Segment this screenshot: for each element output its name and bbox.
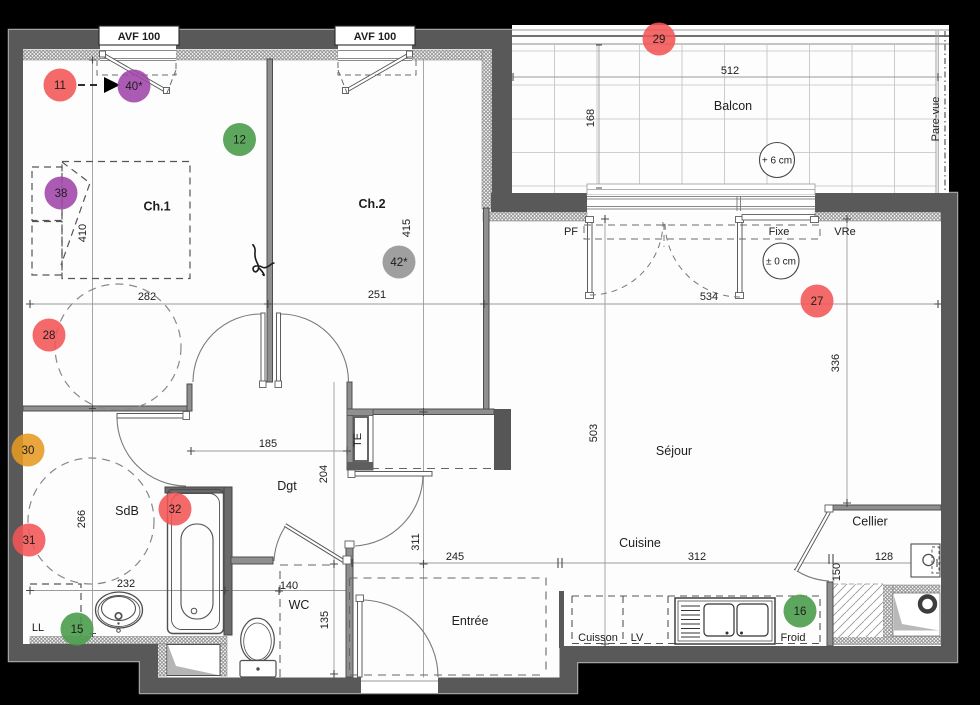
svg-text:29: 29 [653, 34, 666, 46]
svg-text:Froid: Froid [780, 632, 805, 644]
svg-text:282: 282 [138, 291, 156, 303]
svg-text:128: 128 [875, 551, 893, 563]
svg-text:± 0 cm: ± 0 cm [766, 257, 796, 268]
svg-text:32: 32 [169, 504, 182, 516]
svg-text:Cellier: Cellier [852, 515, 887, 529]
svg-text:AVF 100: AVF 100 [118, 31, 161, 43]
svg-text:Séjour: Séjour [656, 444, 692, 458]
svg-text:Entrée: Entrée [452, 614, 489, 628]
svg-text:Dgt: Dgt [277, 479, 297, 493]
svg-text:204: 204 [318, 465, 330, 483]
svg-text:415: 415 [401, 219, 413, 237]
svg-text:12: 12 [233, 135, 246, 147]
svg-text:LV: LV [631, 632, 644, 644]
svg-text:232: 232 [117, 578, 135, 590]
svg-text:Ch.1: Ch.1 [143, 200, 170, 214]
svg-text:312: 312 [688, 551, 706, 563]
svg-text:WC: WC [289, 598, 310, 612]
svg-text:16: 16 [794, 606, 807, 618]
svg-text:503: 503 [588, 424, 600, 442]
svg-text:40*: 40* [125, 81, 143, 93]
svg-text:VRe: VRe [834, 226, 855, 238]
svg-text:SdB: SdB [115, 504, 139, 518]
svg-text:534: 534 [700, 291, 718, 303]
svg-text:410: 410 [77, 224, 89, 242]
svg-text:Cuisson: Cuisson [578, 632, 618, 644]
svg-text:28: 28 [43, 330, 56, 342]
svg-text:266: 266 [76, 510, 88, 528]
svg-text:LL: LL [32, 622, 44, 634]
svg-text:Pare-vue: Pare-vue [930, 97, 942, 142]
svg-text:Ch.2: Ch.2 [358, 197, 385, 211]
svg-text:27: 27 [811, 296, 824, 308]
svg-text:140: 140 [280, 580, 298, 592]
svg-text:+ 6 cm: + 6 cm [762, 156, 792, 167]
svg-text:150: 150 [831, 563, 843, 581]
svg-text:Fixe: Fixe [769, 226, 790, 238]
svg-text:42*: 42* [390, 257, 408, 269]
svg-text:245: 245 [446, 551, 464, 563]
svg-text:Cuisine: Cuisine [619, 536, 661, 550]
svg-text:512: 512 [721, 65, 739, 77]
svg-text:311: 311 [410, 533, 422, 551]
svg-text:38: 38 [55, 188, 68, 200]
svg-text:251: 251 [368, 289, 386, 301]
svg-text:AVF 100: AVF 100 [354, 31, 397, 43]
svg-text:15: 15 [71, 624, 84, 636]
svg-text:168: 168 [585, 109, 597, 127]
svg-text:31: 31 [23, 535, 36, 547]
svg-text:11: 11 [54, 80, 66, 92]
svg-text:135: 135 [319, 611, 331, 629]
svg-text:185: 185 [259, 438, 277, 450]
svg-text:336: 336 [830, 354, 842, 372]
svg-text:TE: TE [352, 433, 364, 447]
svg-text:Balcon: Balcon [714, 99, 752, 113]
svg-text:30: 30 [22, 445, 35, 457]
svg-text:PF: PF [564, 226, 578, 238]
